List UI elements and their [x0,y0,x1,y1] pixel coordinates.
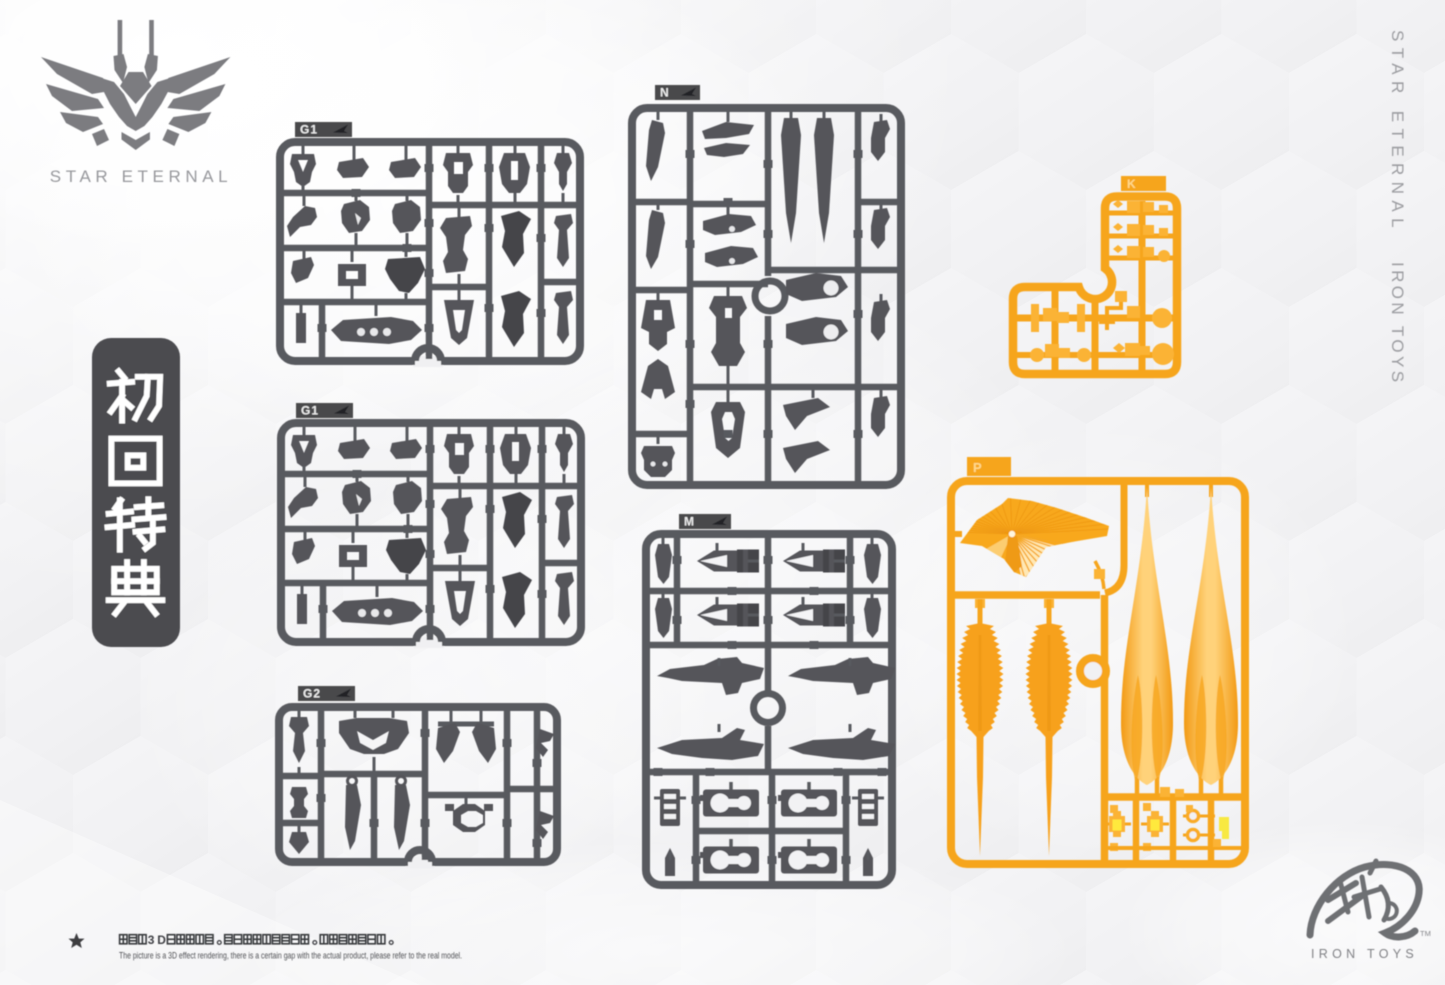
svg-text:P: P [973,460,982,475]
svg-text:TM: TM [1420,929,1431,938]
svg-text:M: M [684,515,695,529]
svg-text:K: K [1127,177,1136,191]
svg-text:IRON TOYS: IRON TOYS [1388,262,1407,386]
svg-text:G2: G2 [303,687,321,701]
svg-text:N: N [660,86,670,100]
svg-text:STAR ETERNAL: STAR ETERNAL [1388,30,1407,234]
svg-text:D: D [157,933,166,947]
svg-text:G1: G1 [301,404,319,418]
svg-text:3: 3 [148,933,155,947]
svg-text:STAR ETERNAL: STAR ETERNAL [50,167,232,186]
svg-text:IRON TOYS: IRON TOYS [1311,947,1418,961]
svg-text:G1: G1 [300,123,318,137]
svg-text:The picture is a 3D effect ren: The picture is a 3D effect rendering, th… [119,951,462,961]
